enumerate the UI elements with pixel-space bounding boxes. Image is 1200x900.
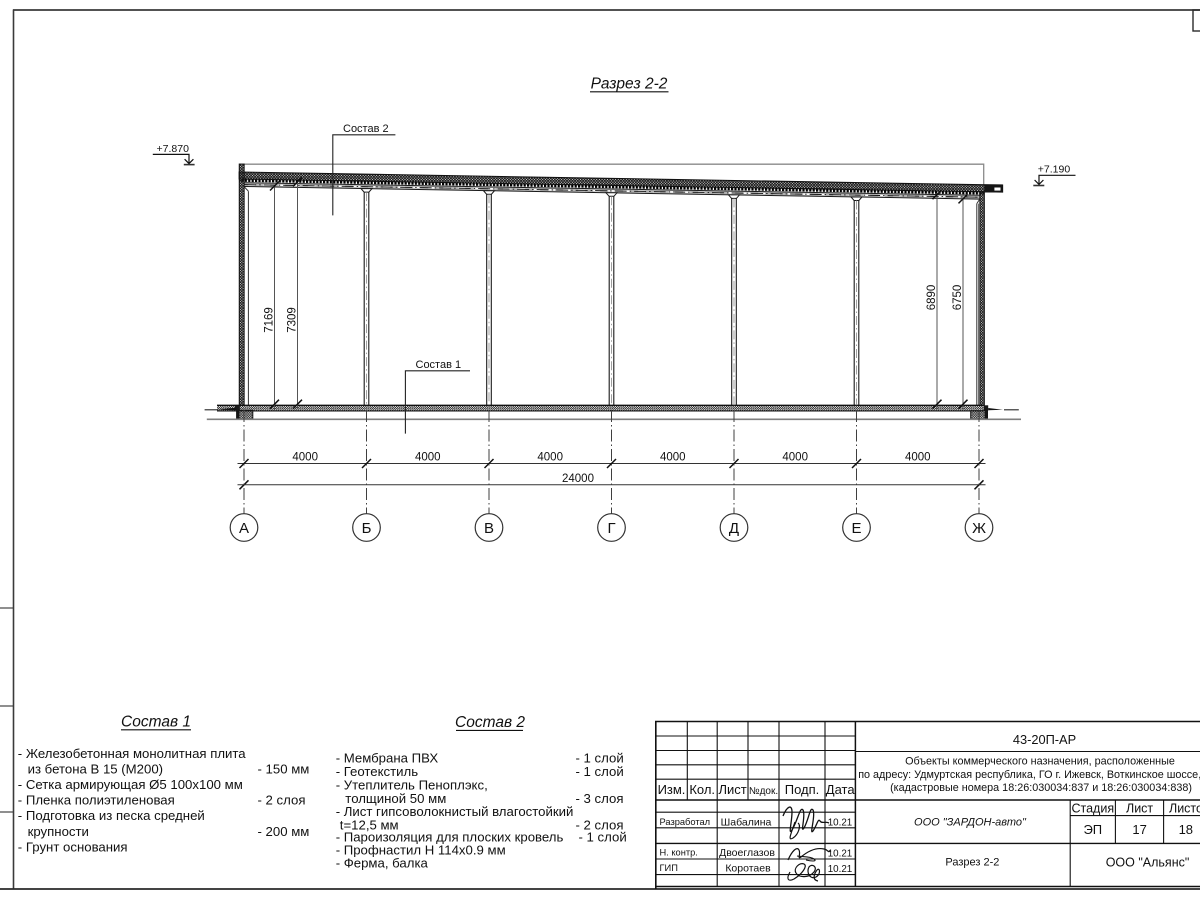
svg-text:Е: Е bbox=[851, 520, 861, 537]
svg-text:крупности: крупности bbox=[28, 824, 89, 839]
svg-text:4000: 4000 bbox=[905, 452, 931, 464]
svg-text:Лист: Лист bbox=[718, 782, 746, 797]
svg-text:10.21: 10.21 bbox=[828, 864, 853, 875]
svg-text:Ж: Ж bbox=[972, 520, 986, 537]
svg-text:Состав 2: Состав 2 bbox=[343, 123, 389, 135]
svg-text:- 150 мм: - 150 мм bbox=[258, 761, 310, 776]
svg-text:Д: Д bbox=[729, 520, 739, 537]
svg-text:- Железобетонная монолитная п: - Железобетонная монолитная плита bbox=[18, 746, 247, 761]
svg-text:- Подготовка из песка средней: - Подготовка из песка средней bbox=[18, 808, 205, 823]
svg-text:24000: 24000 bbox=[562, 473, 594, 485]
svg-text:7309: 7309 bbox=[287, 307, 299, 333]
svg-text:4000: 4000 bbox=[415, 452, 441, 464]
svg-text:А: А bbox=[239, 520, 249, 537]
svg-text:Состав 1: Состав 1 bbox=[416, 359, 462, 371]
svg-text:Коротаев: Коротаев bbox=[725, 862, 771, 874]
svg-text:10.21: 10.21 bbox=[828, 849, 853, 860]
svg-text:- Ферма, балка: - Ферма, балка bbox=[336, 855, 429, 870]
svg-text:7169: 7169 bbox=[264, 307, 276, 333]
svg-text:4000: 4000 bbox=[537, 452, 563, 464]
svg-text:из бетона В 15 (М200): из бетона В 15 (М200) bbox=[28, 761, 163, 776]
svg-text:4000: 4000 bbox=[292, 452, 318, 464]
svg-text:Шабалина: Шабалина bbox=[721, 816, 772, 828]
svg-text:- Мембрана ПВХ: - Мембрана ПВХ bbox=[336, 750, 439, 765]
svg-text:- 1 слой: - 1 слой bbox=[576, 764, 624, 779]
svg-text:43-20П-АР: 43-20П-АР bbox=[1013, 732, 1076, 747]
svg-text:Дата: Дата bbox=[826, 782, 856, 797]
svg-text:Г: Г bbox=[607, 520, 615, 537]
svg-text:Двоеглазов: Двоеглазов bbox=[719, 847, 775, 859]
svg-text:ЭП: ЭП bbox=[1083, 822, 1102, 837]
svg-text:ООО "Альянс": ООО "Альянс" bbox=[1106, 856, 1190, 870]
svg-text:- Грунт основания: - Грунт основания bbox=[18, 839, 128, 854]
svg-text:В: В bbox=[484, 520, 494, 537]
svg-text:Разработал: Разработал bbox=[660, 817, 711, 827]
svg-text:- Сетка армирующая Ø5 100х100: - Сетка армирующая Ø5 100х100 мм bbox=[18, 777, 243, 792]
svg-text:Кол.: Кол. bbox=[689, 782, 715, 797]
svg-text:Состав 2: Состав 2 bbox=[455, 714, 525, 731]
svg-text:- 3 слоя: - 3 слоя bbox=[576, 791, 624, 806]
svg-text:Н. контр.: Н. контр. bbox=[660, 847, 698, 857]
svg-text:Стадия: Стадия bbox=[1071, 802, 1114, 816]
svg-text:17: 17 bbox=[1132, 822, 1146, 837]
svg-text:- Пленка полиэтиленовая: - Пленка полиэтиленовая bbox=[18, 793, 175, 808]
svg-text:ООО "ЗАРДОН-авто": ООО "ЗАРДОН-авто" bbox=[914, 817, 1027, 829]
svg-text:18: 18 bbox=[1179, 822, 1193, 837]
svg-text:по адресу: Удмуртская республи: по адресу: Удмуртская республика, ГО г. … bbox=[858, 769, 1200, 781]
svg-text:10.21: 10.21 bbox=[828, 818, 853, 829]
svg-text:+7.190: +7.190 bbox=[1038, 164, 1071, 176]
svg-text:ГИП: ГИП bbox=[660, 863, 678, 873]
svg-text:Листов: Листов bbox=[1169, 802, 1200, 816]
svg-text:(кадастровые номера 18:26:0300: (кадастровые номера 18:26:030034:837 и 1… bbox=[890, 782, 1192, 794]
svg-text:- 200 мм: - 200 мм bbox=[258, 824, 310, 839]
svg-text:Изм.: Изм. bbox=[658, 782, 686, 797]
svg-text:Б: Б bbox=[362, 520, 372, 537]
svg-text:№док.: №док. bbox=[749, 786, 778, 797]
svg-text:Подп.: Подп. bbox=[785, 782, 820, 797]
svg-text:- 2 слоя: - 2 слоя bbox=[258, 793, 306, 808]
svg-text:4000: 4000 bbox=[660, 452, 686, 464]
svg-text:+7.870: +7.870 bbox=[157, 143, 190, 155]
svg-text:- 1 слой: - 1 слой bbox=[579, 830, 627, 845]
svg-text:Разрез 2-2: Разрез 2-2 bbox=[591, 76, 668, 93]
svg-text:Состав 1: Состав 1 bbox=[121, 714, 191, 731]
svg-text:6890: 6890 bbox=[926, 285, 938, 311]
svg-text:Лист: Лист bbox=[1126, 802, 1153, 816]
svg-text:Объекты коммерческого назначен: Объекты коммерческого назначения, распол… bbox=[905, 756, 1175, 768]
svg-text:Разрез 2-2: Разрез 2-2 bbox=[945, 857, 999, 869]
svg-text:6750: 6750 bbox=[952, 285, 964, 311]
svg-text:4000: 4000 bbox=[782, 452, 808, 464]
svg-text:- 1 слой: - 1 слой bbox=[576, 750, 624, 765]
